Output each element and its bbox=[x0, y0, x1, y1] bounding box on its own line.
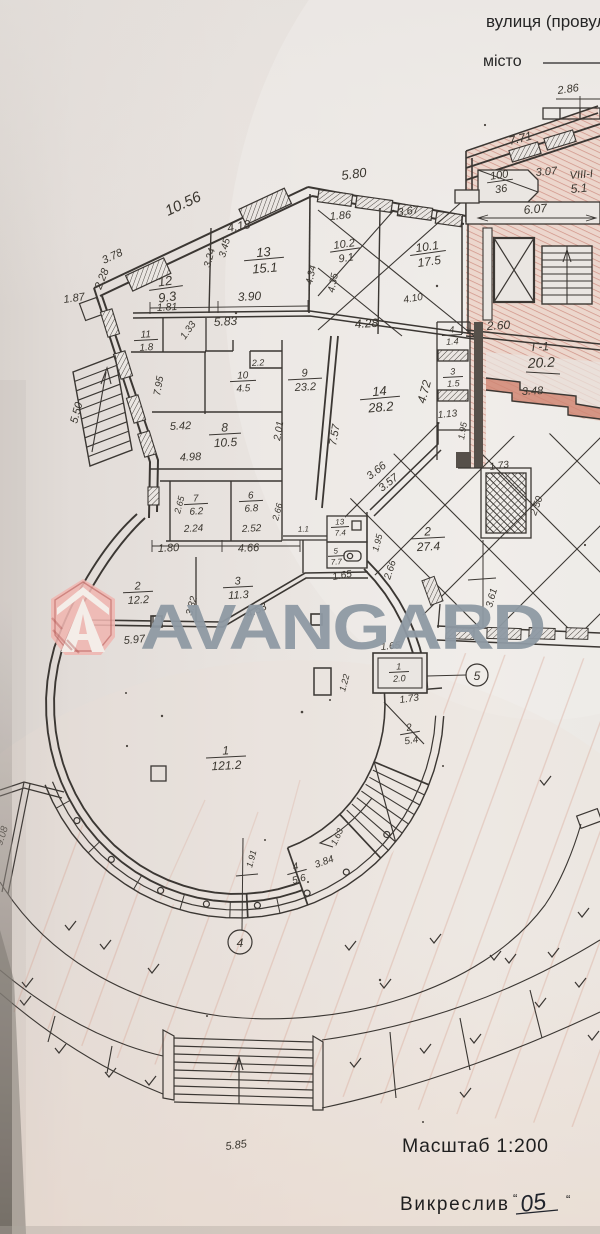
svg-text:4.98: 4.98 bbox=[180, 451, 203, 464]
svg-text:3.90: 3.90 bbox=[237, 289, 261, 304]
svg-text:VIII-I: VIII-I bbox=[569, 168, 593, 182]
svg-text:2.0: 2.0 bbox=[392, 673, 406, 684]
svg-text:5.42: 5.42 bbox=[170, 420, 192, 433]
svg-text:5.1: 5.1 bbox=[570, 181, 588, 196]
svg-text:7: 7 bbox=[193, 493, 200, 504]
svg-text:11: 11 bbox=[140, 329, 151, 341]
svg-text:7.4: 7.4 bbox=[335, 528, 347, 538]
svg-text:14: 14 bbox=[372, 383, 388, 399]
svg-text:7.7: 7.7 bbox=[331, 557, 343, 567]
svg-text:4: 4 bbox=[237, 936, 244, 950]
svg-text:1: 1 bbox=[222, 743, 229, 757]
svg-text:2: 2 bbox=[423, 524, 432, 538]
svg-text:13: 13 bbox=[256, 244, 272, 260]
svg-text:6.8: 6.8 bbox=[244, 503, 259, 515]
svg-text:9.1: 9.1 bbox=[338, 251, 355, 265]
svg-text:2.24: 2.24 bbox=[183, 523, 204, 535]
svg-text:4.28: 4.28 bbox=[354, 316, 378, 331]
svg-text:3.07: 3.07 bbox=[535, 165, 558, 179]
svg-text:1.13: 1.13 bbox=[437, 408, 458, 421]
svg-text:AVANGARD: AVANGARD bbox=[140, 591, 544, 663]
svg-text:1.86: 1.86 bbox=[329, 209, 352, 223]
svg-text:121.2: 121.2 bbox=[211, 758, 242, 774]
svg-text:місто: місто bbox=[483, 53, 522, 70]
svg-text:1.1: 1.1 bbox=[298, 524, 310, 534]
svg-text:“: “ bbox=[513, 1191, 517, 1206]
svg-text:1.8: 1.8 bbox=[139, 342, 154, 354]
svg-text:2.2: 2.2 bbox=[251, 357, 265, 368]
svg-text:9: 9 bbox=[301, 367, 308, 379]
svg-text:10.5: 10.5 bbox=[213, 435, 237, 450]
svg-text:13: 13 bbox=[335, 517, 345, 526]
svg-text:5: 5 bbox=[474, 669, 481, 683]
svg-text:5.83: 5.83 bbox=[213, 314, 237, 329]
svg-text:1.5: 1.5 bbox=[447, 378, 461, 389]
svg-text:10: 10 bbox=[237, 370, 249, 382]
svg-text:20.2: 20.2 bbox=[526, 354, 555, 371]
svg-text:28.2: 28.2 bbox=[367, 398, 395, 415]
svg-text:2.52: 2.52 bbox=[241, 523, 262, 535]
svg-text:15.1: 15.1 bbox=[252, 259, 279, 276]
svg-text:4.66: 4.66 bbox=[238, 542, 261, 555]
svg-text:27.4: 27.4 bbox=[415, 539, 440, 554]
svg-text:23.2: 23.2 bbox=[293, 381, 316, 394]
svg-text:6.07: 6.07 bbox=[523, 201, 549, 217]
svg-text:“: “ bbox=[566, 1192, 570, 1207]
svg-text:6.2: 6.2 bbox=[189, 506, 204, 518]
svg-text:6: 6 bbox=[248, 490, 255, 501]
svg-text:Викреслив: Викреслив bbox=[400, 1194, 508, 1215]
svg-text:3: 3 bbox=[450, 366, 456, 376]
svg-text:1.81: 1.81 bbox=[157, 301, 178, 314]
svg-text:1.4: 1.4 bbox=[446, 336, 459, 347]
svg-text:4.5: 4.5 bbox=[236, 383, 251, 395]
svg-text:3.48: 3.48 bbox=[522, 385, 545, 398]
svg-text:Масштаб 1:200: Масштаб 1:200 bbox=[402, 1135, 548, 1157]
svg-text:вулиця (провул: вулиця (провул bbox=[486, 12, 600, 31]
svg-text:8: 8 bbox=[221, 420, 229, 434]
svg-text:1.80: 1.80 bbox=[158, 542, 181, 555]
svg-text:2.60: 2.60 bbox=[485, 318, 510, 333]
svg-text:Г-1: Г-1 bbox=[531, 339, 549, 354]
svg-text:4: 4 bbox=[449, 324, 455, 334]
